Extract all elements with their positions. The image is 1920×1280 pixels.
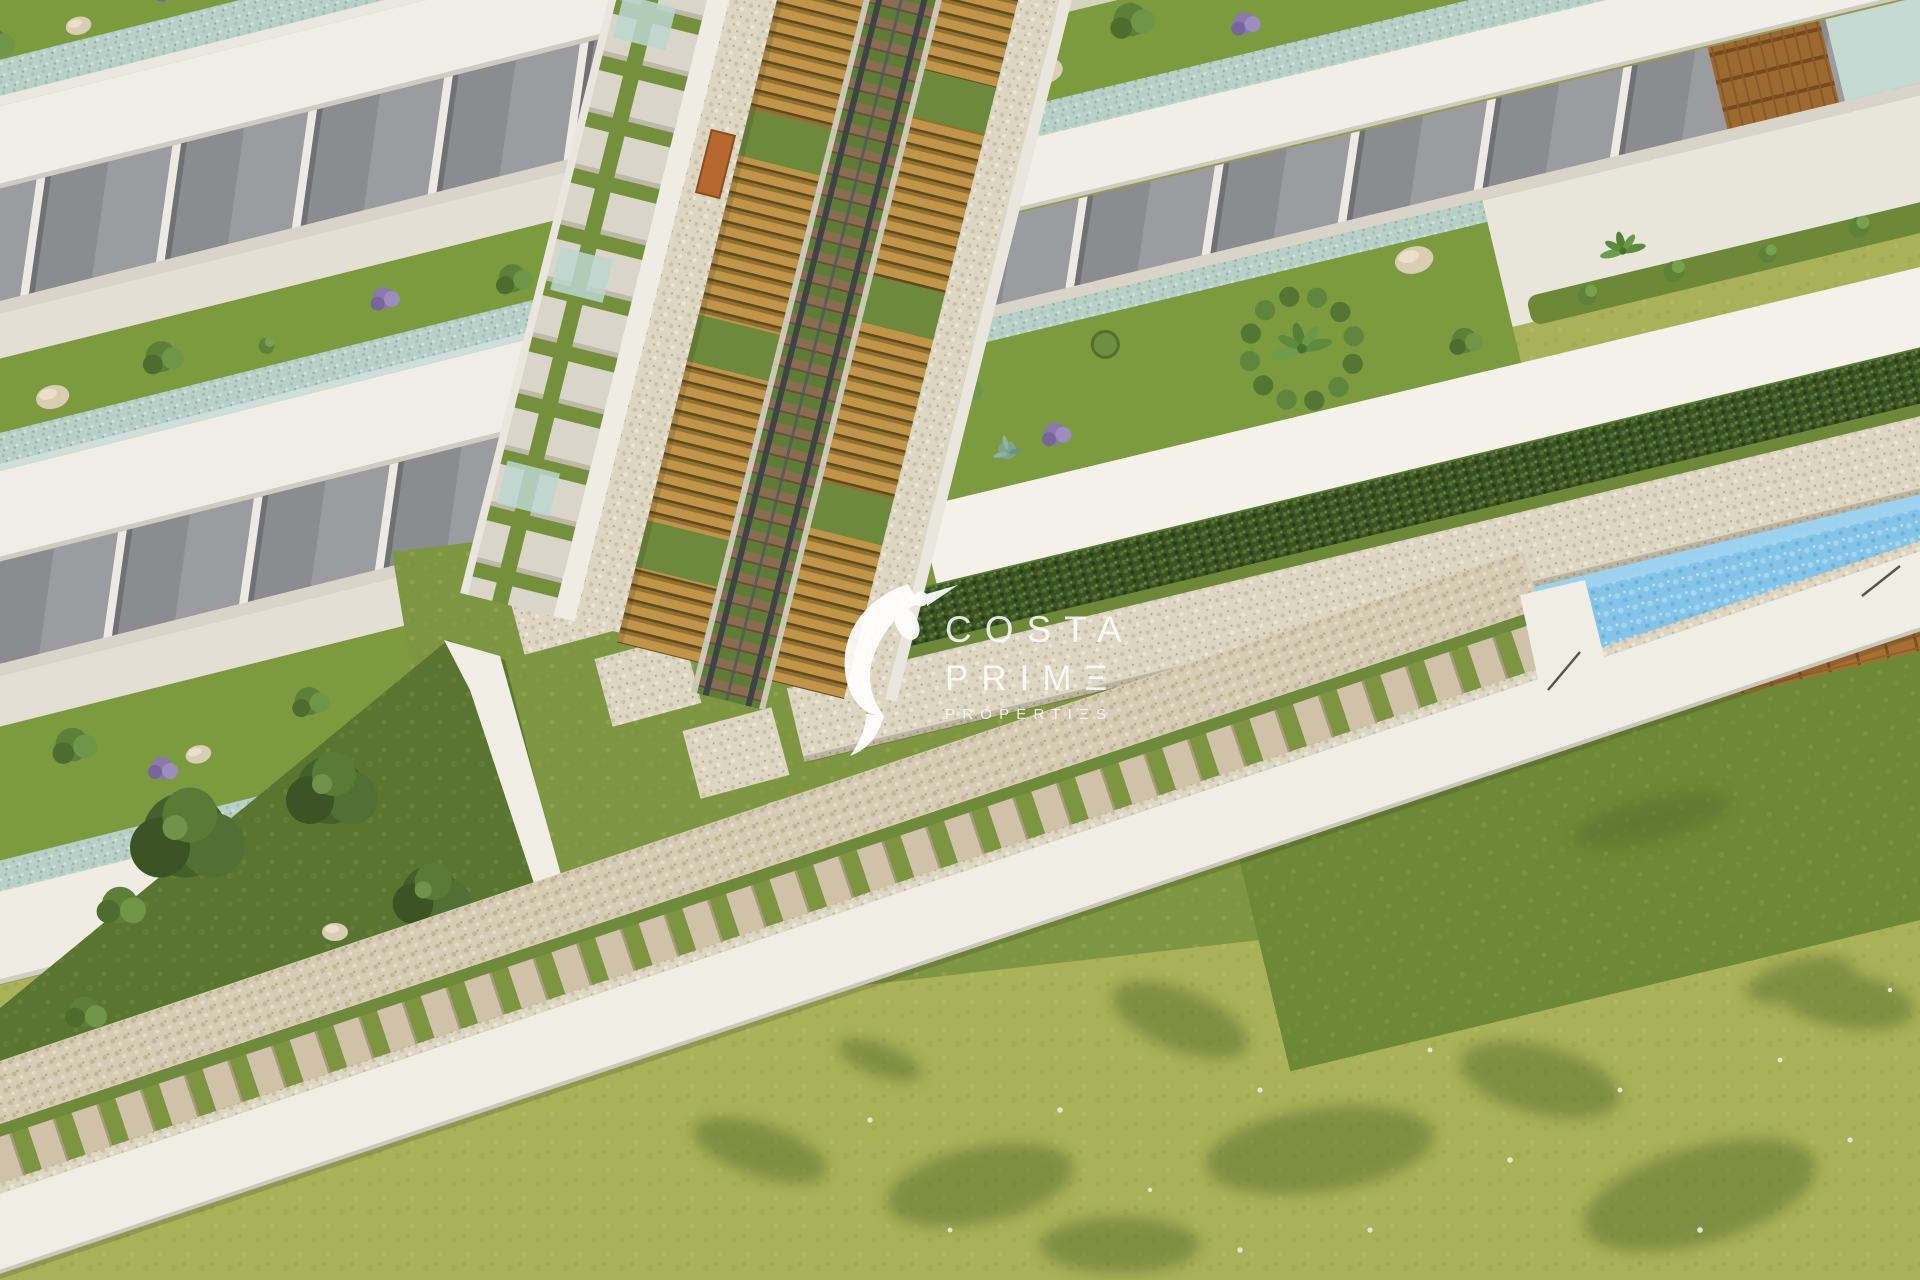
watermark-line-1: COSTA bbox=[945, 609, 1135, 650]
render-canvas: COSTA PRIMΞ PROPERTIΞS bbox=[0, 0, 1920, 1280]
aerial-render: COSTA PRIMΞ PROPERTIΞS bbox=[0, 0, 1920, 1280]
watermark-line-2: PRIMΞ bbox=[945, 659, 1120, 698]
watermark-line-3: PROPERTIΞS bbox=[945, 706, 1113, 723]
